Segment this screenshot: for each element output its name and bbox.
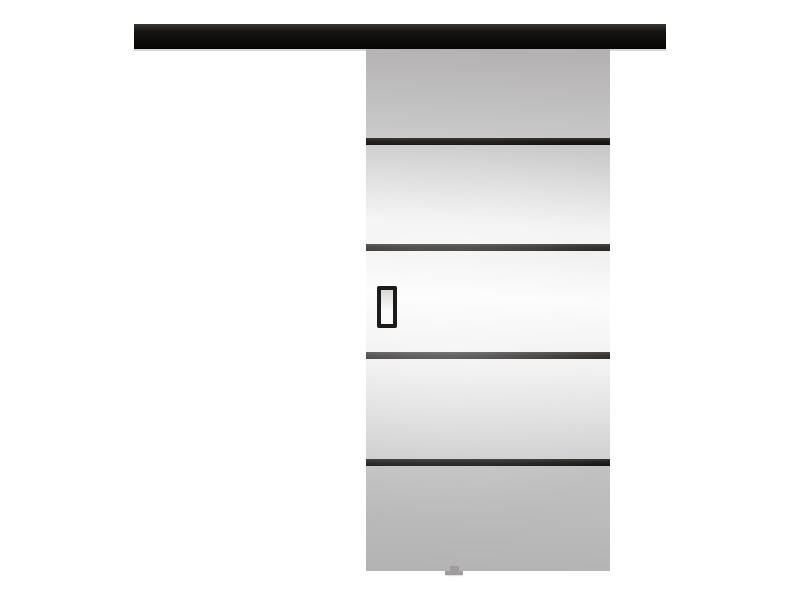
door-panel-section-3 (366, 251, 610, 352)
door-recessed-handle (377, 286, 397, 328)
door-inlay-stripe-1 (366, 138, 610, 145)
door-panel-section-5 (366, 466, 610, 571)
product-photo-stage (0, 0, 800, 600)
door-panel-section-2 (366, 145, 610, 244)
door-panel-section-4 (366, 359, 610, 459)
sliding-door-top-rail (134, 24, 666, 51)
floor-guide-base (445, 571, 463, 575)
door-panel (366, 49, 610, 571)
door-inlay-stripe-4 (366, 459, 610, 466)
door-inlay-stripe-3 (366, 352, 610, 359)
door-inlay-stripe-2 (366, 244, 610, 251)
door-panel-section-1 (366, 49, 610, 138)
